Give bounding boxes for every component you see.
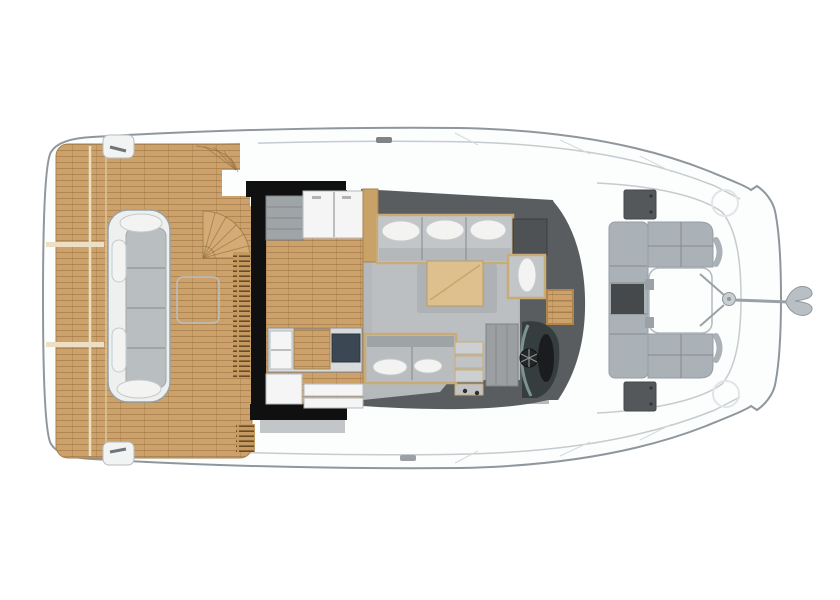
hatch-hinge xyxy=(650,211,653,214)
bench-bolster xyxy=(112,240,126,282)
hatch-hinge xyxy=(650,387,653,390)
platform-joint xyxy=(46,242,104,247)
sofa-pillow xyxy=(382,221,420,241)
bow-locker xyxy=(611,284,644,314)
galley-lower-counter xyxy=(304,398,363,408)
stern-pad xyxy=(103,135,134,158)
louvre-vents xyxy=(233,252,250,378)
bow-rail xyxy=(716,240,720,264)
step xyxy=(455,342,483,354)
settee xyxy=(365,334,456,383)
foredeck-hatch xyxy=(624,382,656,411)
hatch-hinge xyxy=(650,403,653,406)
deck-plan xyxy=(0,0,840,600)
bench-pillow xyxy=(117,380,161,398)
coffee-table-top xyxy=(427,261,483,306)
cleat xyxy=(376,137,392,143)
steering-wheel xyxy=(538,334,554,382)
sofa-corner-unit xyxy=(513,219,547,255)
settee-back xyxy=(367,336,454,347)
sofa-pillow xyxy=(470,220,506,240)
platform-joint xyxy=(46,342,104,347)
cockpit-bench xyxy=(108,210,170,402)
galley-island xyxy=(268,328,362,372)
galley-lower-counter xyxy=(304,384,363,396)
galley-appliance xyxy=(266,374,302,404)
deck-fitting xyxy=(463,389,467,393)
settee-pillow xyxy=(373,359,407,375)
anchor-roller-pin xyxy=(727,297,731,301)
hatch-hinge xyxy=(650,195,653,198)
table-bracket xyxy=(645,317,654,328)
counter-handle xyxy=(312,196,321,199)
deck-fitting xyxy=(475,391,479,395)
sofa-pillow xyxy=(518,258,536,292)
aft-deck xyxy=(46,135,258,465)
counter-handle xyxy=(342,196,351,199)
sofa-seat-front xyxy=(379,248,511,261)
entry-step xyxy=(260,420,345,433)
cleat xyxy=(400,455,416,461)
foredeck-hatch xyxy=(624,190,656,219)
salon-aft-wall-side xyxy=(251,197,266,404)
step xyxy=(455,356,483,368)
bench-bolster xyxy=(112,328,126,372)
settee-pillow xyxy=(414,359,442,373)
coffee-table xyxy=(427,261,483,306)
salon xyxy=(246,181,585,433)
island-cooktop xyxy=(332,334,360,362)
windshield-step xyxy=(547,290,573,324)
anchor-shank xyxy=(735,300,788,302)
sofa-pillow xyxy=(426,220,464,240)
bench-pillow xyxy=(120,214,162,232)
stern-pad xyxy=(103,442,134,465)
anchor-flukes xyxy=(786,287,812,316)
table-bracket xyxy=(645,279,654,290)
bow-rail xyxy=(716,336,720,360)
foredeck-seating xyxy=(609,222,720,378)
island-wood-top xyxy=(294,329,330,369)
louvre-vents xyxy=(236,424,255,452)
helm-cabinet xyxy=(486,324,518,386)
companionway-steps xyxy=(455,342,483,395)
step xyxy=(455,370,483,382)
